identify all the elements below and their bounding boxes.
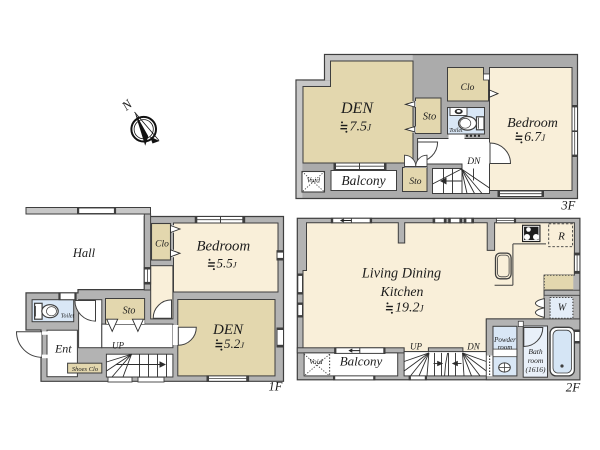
svg-text:2F: 2F: [566, 380, 582, 395]
svg-text:Ent: Ent: [54, 342, 72, 356]
svg-text:Balcony: Balcony: [340, 354, 383, 369]
svg-text:Void: Void: [307, 176, 321, 185]
svg-text:Bedroom: Bedroom: [196, 238, 250, 254]
svg-text:room: room: [498, 344, 513, 352]
svg-text:Living Dining: Living Dining: [361, 266, 441, 282]
svg-text:Kitchen: Kitchen: [380, 284, 424, 299]
svg-text:(1616): (1616): [526, 365, 546, 374]
svg-text:Balcony: Balcony: [341, 173, 385, 188]
svg-text:Void: Void: [309, 357, 323, 366]
svg-text:Toilet: Toilet: [449, 128, 463, 134]
svg-text:Sto: Sto: [123, 306, 136, 317]
svg-text:DEN: DEN: [340, 100, 374, 117]
svg-text:UP: UP: [112, 341, 124, 351]
svg-text:Sto: Sto: [409, 177, 421, 187]
svg-text:1F: 1F: [268, 380, 282, 394]
svg-text:Sto: Sto: [423, 112, 436, 123]
svg-text:3F: 3F: [560, 198, 575, 212]
svg-text:Clo: Clo: [155, 240, 169, 250]
svg-text:DN: DN: [466, 342, 480, 352]
svg-text:N: N: [118, 95, 136, 114]
svg-text:Hall: Hall: [72, 246, 96, 260]
svg-text:19.2J: 19.2J: [395, 301, 425, 316]
svg-text:room: room: [528, 356, 544, 365]
svg-text:UP: UP: [410, 342, 422, 352]
svg-text:Bath: Bath: [528, 347, 542, 356]
svg-text:7.5J: 7.5J: [350, 120, 373, 135]
svg-text:Toilet: Toilet: [61, 314, 75, 320]
svg-text:R: R: [557, 230, 565, 242]
svg-text:Shoes Clo: Shoes Clo: [72, 366, 99, 373]
svg-text:DN: DN: [466, 157, 481, 167]
svg-text:Clo: Clo: [461, 83, 475, 93]
